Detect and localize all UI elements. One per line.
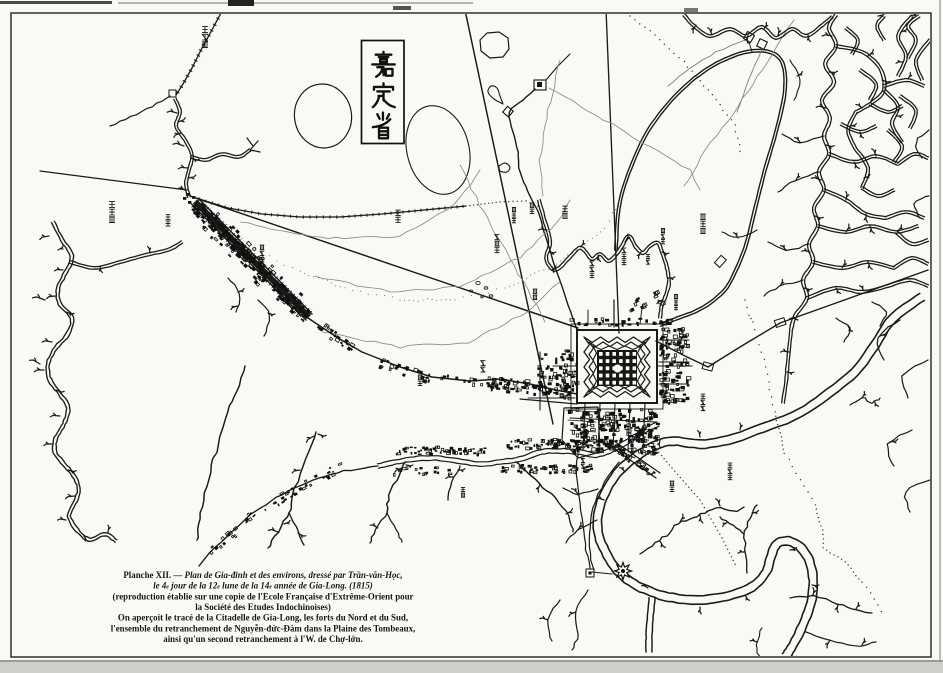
svg-text:le 4e jour de la 12e lune de l: le 4e jour de la 12e lune de la 14e anné…: [153, 581, 373, 591]
svg-text:ainsi qu'un second retranchem: ainsi qu'un second retranchement à l'W. …: [163, 634, 362, 644]
svg-text:la Société des Etudes Indochin: la Société des Etudes Indochinoises): [195, 602, 331, 612]
svg-text:On aperçoit le tracé de la Cit: On aperçoit le tracé de la Citadelle de …: [118, 613, 408, 623]
svg-text:l'ensemble du retranchement de: l'ensemble du retranchement de Nguyễn-đứ…: [111, 623, 415, 633]
svg-text:(reproduction établie sur une: (reproduction établie sur une copie de l…: [113, 591, 414, 601]
svg-text:Planche XII. — Plan de Gia-đin: Planche XII. — Plan de Gia-đinh et des e…: [123, 570, 402, 580]
